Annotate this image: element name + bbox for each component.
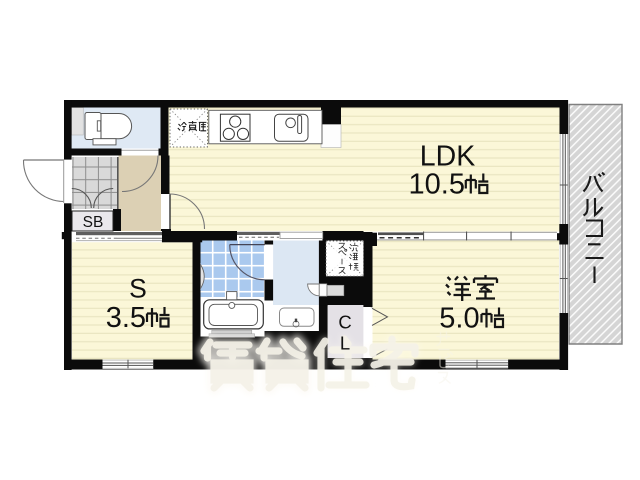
svg-text:3.5: 3.5	[106, 302, 146, 334]
svg-text:SB: SB	[83, 214, 104, 231]
svg-text:S: S	[129, 274, 147, 304]
svg-text:C: C	[338, 312, 351, 333]
svg-text:5.0: 5.0	[439, 303, 479, 335]
svg-text:10.5: 10.5	[409, 169, 465, 201]
svg-text:L: L	[340, 332, 350, 353]
